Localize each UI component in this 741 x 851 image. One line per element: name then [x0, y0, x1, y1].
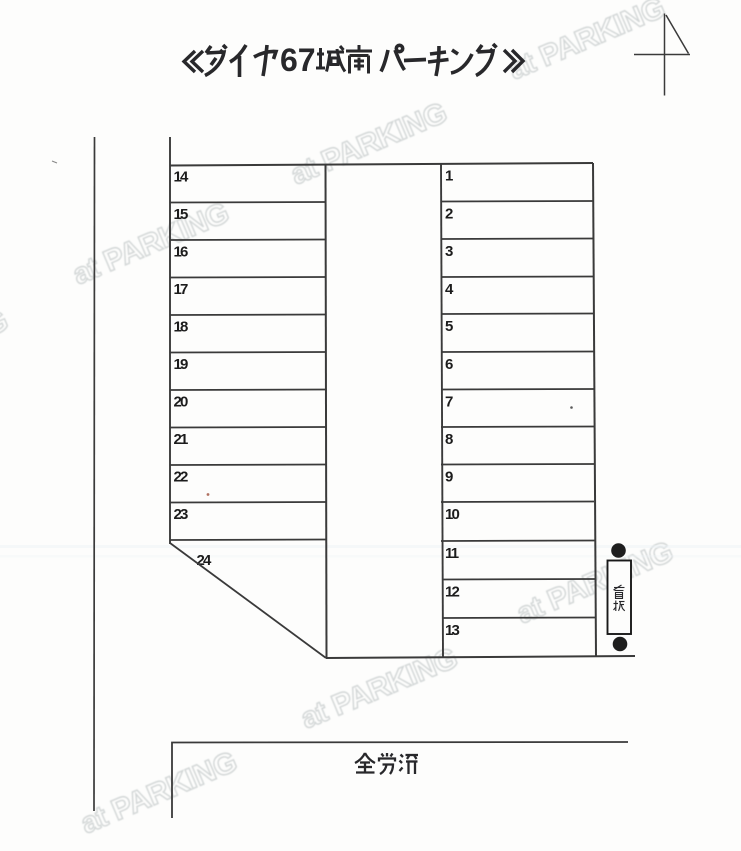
svg-text:12: 12: [445, 584, 460, 601]
svg-text:15: 15: [174, 206, 189, 223]
svg-text:17: 17: [174, 281, 189, 298]
svg-text:20: 20: [174, 394, 189, 411]
svg-text:21: 21: [174, 431, 189, 448]
svg-text:19: 19: [174, 356, 189, 373]
svg-text:16: 16: [174, 244, 189, 261]
svg-text:10: 10: [445, 506, 460, 523]
svg-text:18: 18: [174, 319, 189, 336]
svg-text:11: 11: [445, 545, 459, 562]
svg-text:22: 22: [174, 469, 189, 486]
svg-text:67: 67: [280, 42, 316, 78]
svg-text:23: 23: [174, 506, 189, 523]
svg-text:13: 13: [445, 622, 460, 639]
